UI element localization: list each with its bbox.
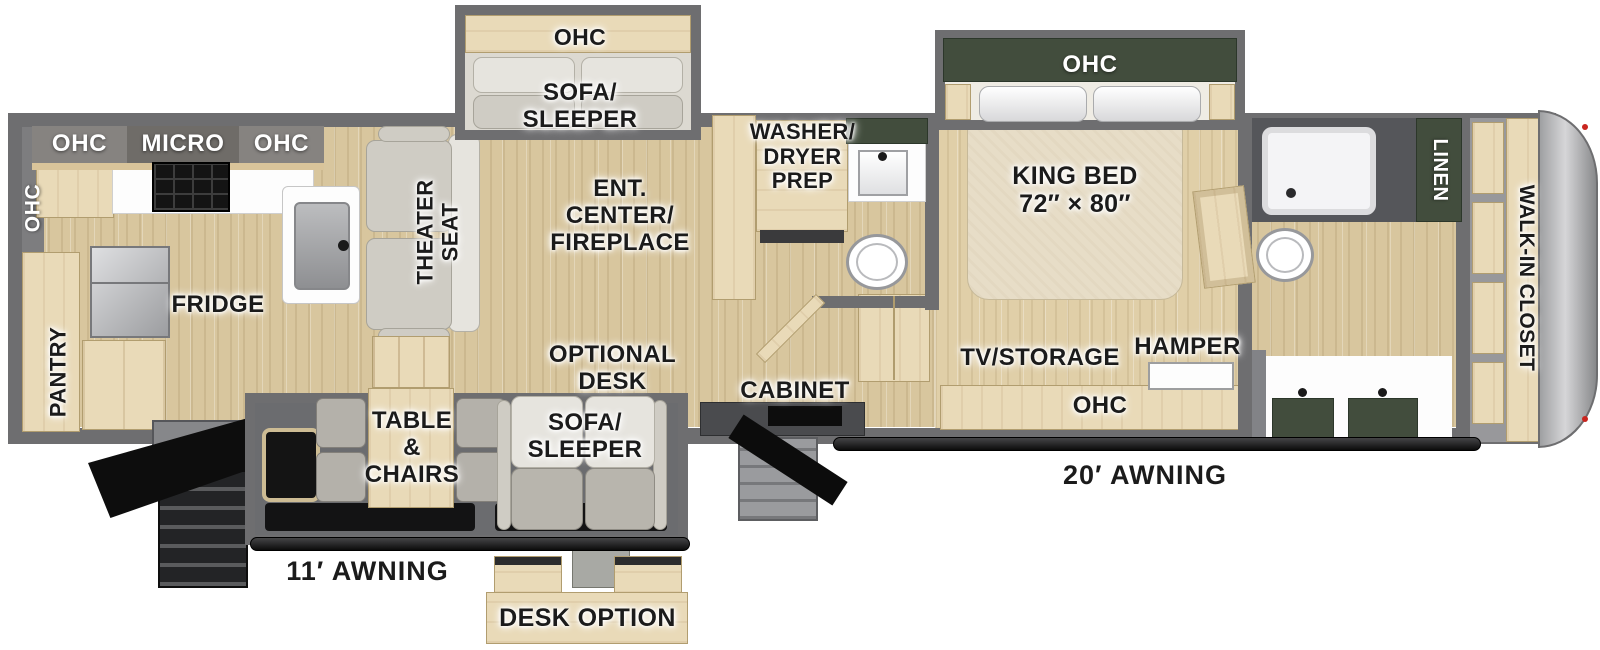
sofa-sleeper-bottom-label: SOFA/ SLEEPER: [505, 410, 665, 464]
closet-shelf-4: [1472, 362, 1504, 424]
optional-desk-label: OPTIONAL DESK: [520, 342, 705, 396]
kitchen-lower-cabinets: [82, 340, 166, 430]
king-bed-label: KING BED 72″ × 80″: [985, 162, 1165, 218]
kitchen-micro-cabinet: MICRO: [127, 126, 239, 163]
nose-cap: [1538, 110, 1598, 448]
king-pillow-1: [979, 86, 1087, 122]
fridge-label: FRIDGE: [158, 292, 278, 319]
linen-label: LINEN: [1429, 139, 1451, 202]
cooktop: [152, 162, 230, 212]
shower-drain-icon: [1286, 188, 1296, 198]
king-nightstand-right: [1209, 84, 1235, 120]
table-chairs-label: TABLE & CHAIRS: [332, 408, 492, 489]
kitchen-ohc-left-label: OHC: [21, 184, 44, 232]
awning-11-bar: [250, 537, 690, 551]
awning-20-bar: [833, 437, 1481, 451]
pantry-label: PANTRY: [47, 327, 72, 417]
bedroom-steps-divider: [893, 296, 895, 380]
rearbath-sink-2: [1348, 398, 1418, 438]
desk-option-label: DESK OPTION: [490, 604, 685, 632]
closet-shelf-2: [1472, 202, 1504, 274]
fridge-divider: [92, 282, 168, 284]
king-nightstand-left: [945, 84, 971, 120]
king-bed-slideout: [935, 30, 1245, 130]
awning-20-label: 20′ AWNING: [1020, 460, 1270, 490]
rear-wall: [8, 113, 22, 444]
hamper: [1148, 362, 1234, 390]
sofa-slide-ohc-label: OHC: [520, 25, 640, 51]
kitchen-ohc-cabinet: OHC: [32, 126, 127, 163]
dinette-hutch: [372, 336, 450, 388]
theater-seat-armrest-top: [378, 126, 450, 142]
bedroom-ohc-label: OHC: [1040, 393, 1160, 420]
rearbath-vanity-wall-left: [1252, 350, 1266, 444]
cabinet-opening: [768, 406, 842, 426]
rearbath-toilet-seat: [1266, 237, 1304, 273]
king-pillow-2: [1093, 86, 1201, 122]
kitchen-corner-cabinet: [36, 168, 114, 218]
ent-center-label: ENT. CENTER/ FIREPLACE: [520, 176, 720, 257]
hamper-label: HAMPER: [1125, 334, 1250, 361]
king-slide-ohc-label: OHC: [1030, 52, 1150, 78]
sofa-sleeper-top-label: SOFA/ SLEEPER: [500, 80, 660, 134]
washer-dryer-front: [760, 230, 844, 243]
marker-light-top-icon: [1582, 124, 1588, 130]
halfbath-right-wall: [925, 115, 939, 310]
tv-storage-label: TV/STORAGE: [940, 345, 1140, 372]
theater-seat-label: THEATER SEAT: [413, 179, 462, 284]
rearbath-sink-1: [1272, 398, 1334, 438]
shower-pan: [1262, 127, 1376, 215]
halfbath-bottom-wall: [812, 296, 939, 308]
halfbath-toilet-seat: [856, 243, 898, 281]
sofa-bottom-seat-cushion-2: [585, 468, 655, 530]
sofa-bottom-seat-cushion-1: [511, 468, 583, 530]
kitchen-ohc-micro-band: OHC MICRO OHC: [32, 126, 324, 163]
kitchen-micro-label: MICRO: [142, 131, 225, 157]
cabinet-label: CABINET: [710, 378, 880, 405]
walk-in-closet-label: WALK-IN CLOSET: [1514, 185, 1538, 371]
marker-light-bottom-icon: [1582, 416, 1588, 422]
desk-option-pedestal-right: [614, 556, 682, 594]
slideout-window: [262, 428, 320, 502]
halfbath-faucet-icon: [878, 152, 887, 161]
rearbath-faucet-1-icon: [1298, 388, 1307, 397]
kitchen-ohc1-label: OHC: [52, 131, 107, 157]
desk-option-pedestal-left: [494, 556, 562, 594]
washer-dryer-label: WASHER/ DRYER PREP: [735, 120, 870, 194]
awning-11-label: 11′ AWNING: [245, 556, 490, 586]
kitchen-faucet-icon: [338, 240, 349, 251]
floorplan-canvas: OHC MICRO OHC OHC PANTRY FRIDGE THEATER …: [0, 0, 1600, 650]
closet-shelf-3: [1472, 282, 1504, 354]
kitchen-ohc2-label: OHC: [254, 131, 309, 157]
kitchen-ohc2-cabinet: OHC: [239, 126, 324, 163]
rearbath-faucet-2-icon: [1378, 388, 1387, 397]
closet-shelf-1: [1472, 122, 1504, 194]
